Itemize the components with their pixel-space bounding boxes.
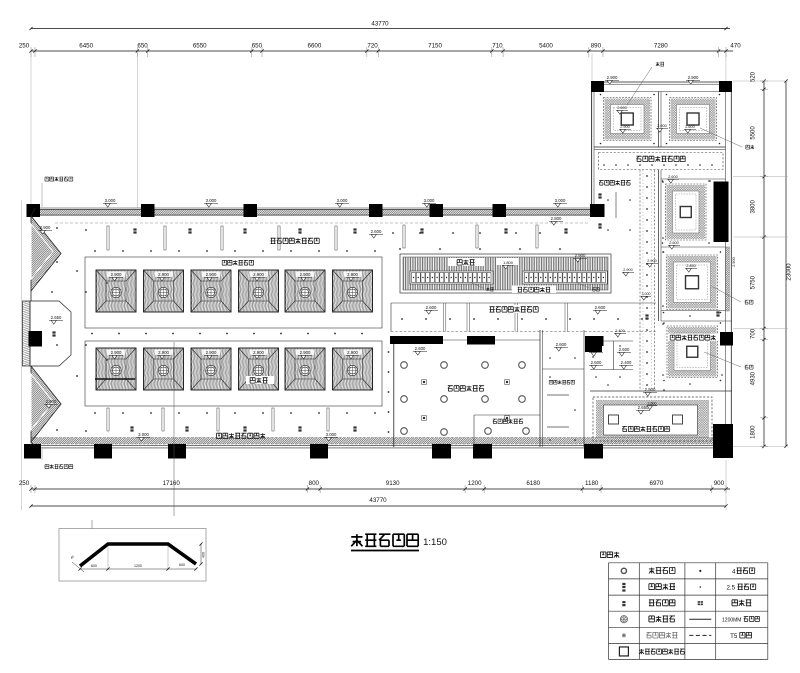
svg-text:650: 650 <box>252 43 263 50</box>
svg-text:T5: T5 <box>730 633 738 640</box>
svg-text:6450: 6450 <box>79 43 93 50</box>
svg-text:2.900: 2.900 <box>688 75 699 80</box>
svg-text:2.900: 2.900 <box>40 225 51 230</box>
svg-text:2.650: 2.650 <box>51 315 62 320</box>
svg-text:2.900: 2.900 <box>647 259 657 263</box>
svg-text:650: 650 <box>137 43 148 50</box>
svg-text:2.800: 2.800 <box>551 216 562 221</box>
svg-text:2.900: 2.900 <box>575 253 586 258</box>
svg-text:2.600: 2.600 <box>619 347 630 352</box>
svg-text:720: 720 <box>367 43 378 50</box>
svg-text:2.600: 2.600 <box>371 229 382 234</box>
svg-text:6600: 6600 <box>308 43 322 50</box>
svg-text:3.000: 3.000 <box>105 198 116 203</box>
svg-text:23000: 23000 <box>786 263 793 281</box>
svg-text:2.600: 2.600 <box>685 125 695 129</box>
svg-text:1200MM: 1200MM <box>722 617 741 623</box>
svg-text:5750: 5750 <box>751 275 757 289</box>
svg-text:7280: 7280 <box>654 43 668 50</box>
svg-text:700: 700 <box>751 328 757 339</box>
svg-text:3.000: 3.000 <box>206 198 217 203</box>
svg-text:890: 890 <box>591 43 602 50</box>
svg-text:5500: 5500 <box>751 126 757 140</box>
svg-text:6970: 6970 <box>650 480 664 487</box>
svg-text:1:150: 1:150 <box>423 537 447 548</box>
svg-text:2.600: 2.600 <box>556 342 567 347</box>
svg-text:2.600: 2.600 <box>591 360 602 365</box>
svg-text:900: 900 <box>714 480 725 487</box>
svg-text:2.600: 2.600 <box>668 175 678 179</box>
svg-text:1200: 1200 <box>134 564 142 568</box>
svg-text:4: 4 <box>732 568 736 575</box>
svg-text:2.650: 2.650 <box>617 106 627 110</box>
svg-text:2.400: 2.400 <box>615 329 625 333</box>
svg-text:3.000: 3.000 <box>642 292 651 296</box>
svg-text:520: 520 <box>751 71 757 82</box>
svg-text:2.900: 2.900 <box>46 399 57 404</box>
svg-text:1180: 1180 <box>585 480 599 487</box>
svg-text:6180: 6180 <box>526 480 540 487</box>
svg-text:7150: 7150 <box>428 43 442 50</box>
svg-text:2.600: 2.600 <box>657 124 667 128</box>
svg-text:2.850: 2.850 <box>686 264 696 268</box>
svg-text:2.600: 2.600 <box>669 241 679 245</box>
svg-text:2.900: 2.900 <box>732 257 736 267</box>
svg-text:6550: 6550 <box>193 43 207 50</box>
svg-text:3.000: 3.000 <box>337 198 348 203</box>
svg-text:250: 250 <box>19 43 30 50</box>
svg-text:3.000: 3.000 <box>138 432 149 437</box>
svg-text:3.000: 3.000 <box>326 432 337 437</box>
svg-text:2.600: 2.600 <box>648 402 657 406</box>
svg-text:1.800: 1.800 <box>503 260 514 265</box>
svg-text:4930: 4930 <box>751 371 757 385</box>
svg-text:9130: 9130 <box>386 480 400 487</box>
svg-text:400: 400 <box>202 552 206 558</box>
svg-text:2.400: 2.400 <box>621 360 632 365</box>
svg-text:43770: 43770 <box>369 497 387 504</box>
svg-text:17160: 17160 <box>163 480 181 487</box>
svg-text:3800: 3800 <box>751 200 757 214</box>
svg-text:1800: 1800 <box>751 425 757 439</box>
svg-text:2.900: 2.900 <box>607 75 618 80</box>
svg-text:5400: 5400 <box>539 43 553 50</box>
svg-text:2.5: 2.5 <box>726 585 735 592</box>
svg-text:2.600: 2.600 <box>595 305 606 310</box>
svg-text:600: 600 <box>91 564 97 568</box>
svg-text:710: 710 <box>492 43 503 50</box>
svg-text:3.000: 3.000 <box>555 198 566 203</box>
svg-text:800: 800 <box>309 480 320 487</box>
svg-text:43770: 43770 <box>371 21 389 28</box>
svg-text:2.900: 2.900 <box>620 125 630 129</box>
svg-text:2.600: 2.600 <box>415 346 426 351</box>
svg-text:2.600: 2.600 <box>426 305 437 310</box>
svg-text:1200: 1200 <box>468 480 482 487</box>
svg-text:3.000: 3.000 <box>424 198 435 203</box>
svg-text:250: 250 <box>19 480 30 487</box>
svg-text:470: 470 <box>730 43 741 50</box>
svg-text:600: 600 <box>179 563 185 567</box>
svg-text:2.900: 2.900 <box>623 268 633 272</box>
